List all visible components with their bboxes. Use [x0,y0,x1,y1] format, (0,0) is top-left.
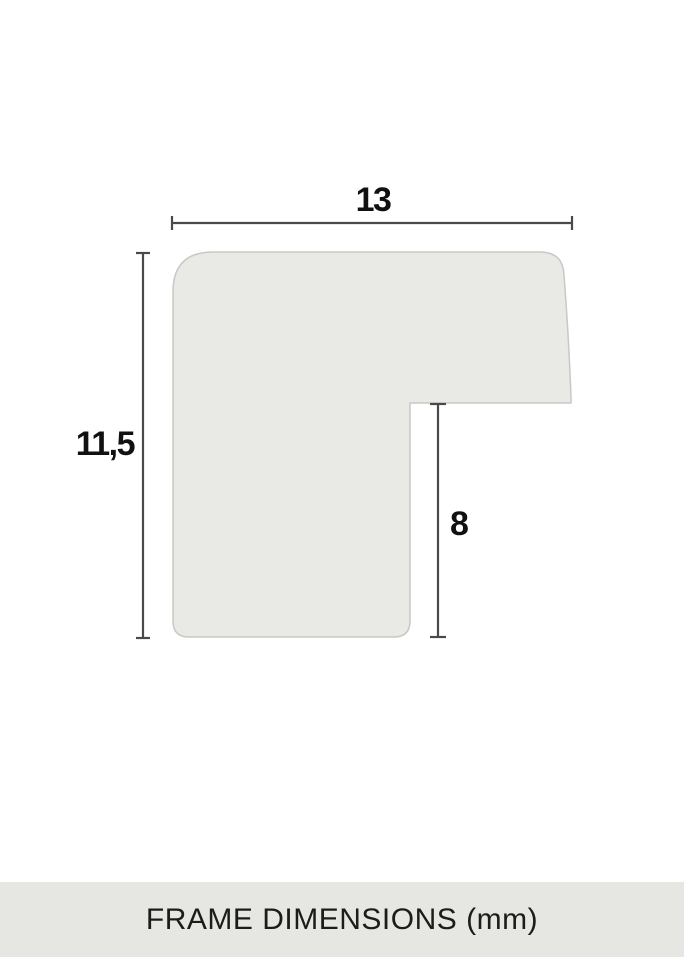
inner-depth-dimension-line [430,404,446,637]
height-dimension-line [136,253,150,638]
caption-bar: FRAME DIMENSIONS (mm) [0,882,684,957]
width-dimension-label: 13 [356,183,391,217]
profile-diagram-canvas [0,0,684,700]
height-dimension-label: 11,5 [76,427,134,461]
frame-dimensions-diagram: 13 11,5 8 FRAME DIMENSIONS (mm) [0,0,684,957]
inner-depth-dimension-label: 8 [450,507,467,541]
frame-profile-shape [173,252,571,637]
caption-text: FRAME DIMENSIONS (mm) [146,903,538,937]
